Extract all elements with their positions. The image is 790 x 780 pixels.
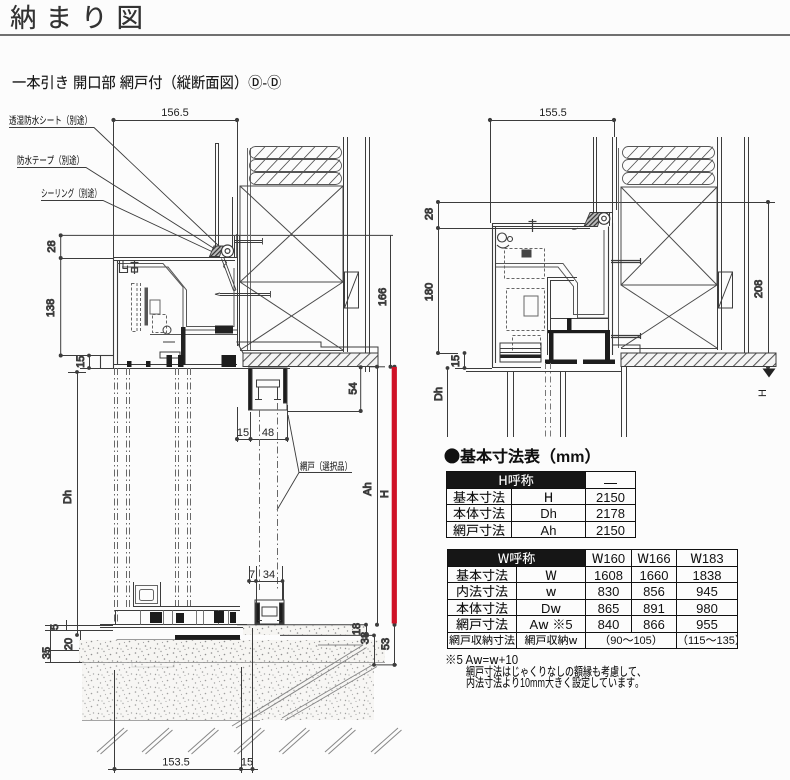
svg-text:Dh: Dh [62,490,74,504]
svg-text:15: 15 [237,427,249,439]
svg-text:156.5: 156.5 [161,107,189,119]
svg-text:5: 5 [49,624,61,630]
svg-text:138: 138 [45,299,57,317]
svg-text:15: 15 [241,757,253,769]
svg-text:H: H [379,490,391,498]
svg-text:Ah: Ah [362,482,374,495]
svg-text:15: 15 [450,355,462,367]
svg-text:38: 38 [360,632,372,644]
svg-text:34: 34 [263,569,275,581]
svg-text:シーリング（別途）: シーリング（別途） [41,186,101,201]
svg-text:28: 28 [424,208,436,220]
svg-text:155.5: 155.5 [539,107,567,119]
svg-text:20: 20 [63,638,75,650]
svg-text:35: 35 [41,647,53,659]
svg-text:53: 53 [380,638,392,650]
svg-text:208: 208 [753,280,765,298]
svg-text:166: 166 [377,288,389,306]
svg-text:防水テープ（別途）: 防水テープ（別途） [17,153,84,168]
svg-text:48: 48 [262,427,274,439]
svg-text:H: H [757,389,769,397]
svg-text:153.5: 153.5 [162,757,190,769]
svg-text:54: 54 [348,382,360,394]
svg-text:180: 180 [424,283,436,301]
svg-text:7: 7 [249,569,255,581]
svg-text:Dh: Dh [433,387,445,401]
svg-text:28: 28 [46,240,58,252]
svg-text:透湿防水シート（別途）: 透湿防水シート（別途） [9,113,92,128]
svg-text:網戸（選択品）: 網戸（選択品） [300,459,352,474]
svg-text:15: 15 [75,356,87,368]
